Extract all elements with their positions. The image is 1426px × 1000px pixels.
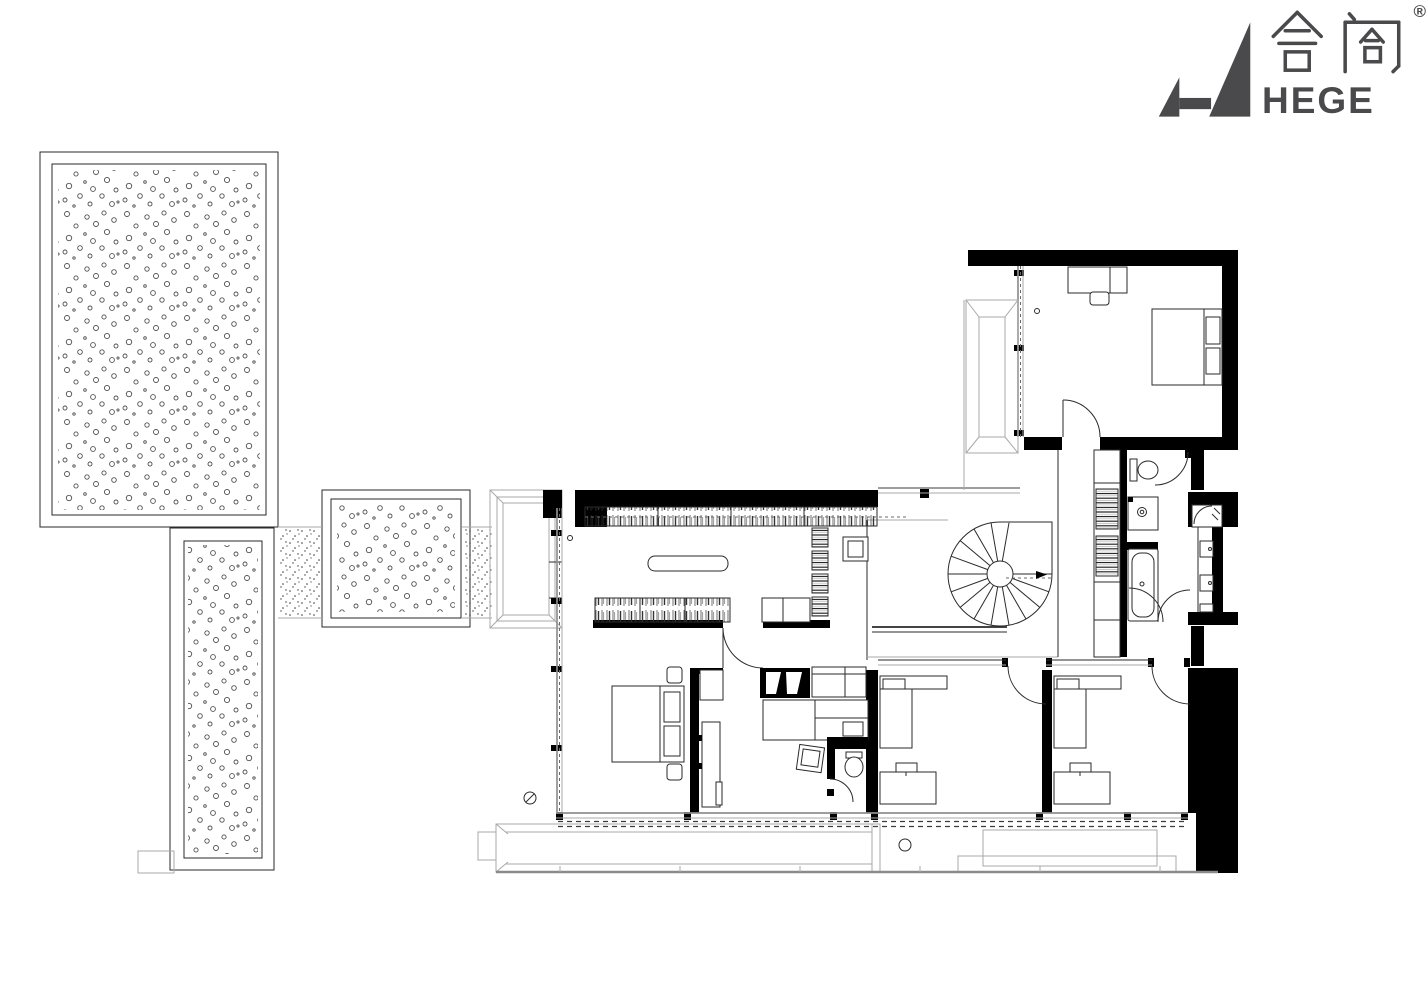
table [648, 556, 728, 571]
stipple-path-right [464, 529, 492, 616]
monitor [896, 763, 917, 772]
brand-chinese-characters: 合阁 ® [1262, 6, 1410, 78]
hege-logo-mark [1142, 19, 1254, 119]
planter-skylight [966, 300, 1018, 453]
single-bed [880, 689, 912, 748]
nightstand [667, 764, 682, 780]
wc-room [1130, 450, 1204, 490]
desk [1054, 772, 1110, 804]
single-bed [1054, 689, 1086, 748]
kid-bedroom-1 [880, 666, 1046, 804]
spiral-staircase [948, 522, 1052, 626]
gravel-garden-large [40, 152, 278, 527]
dressing-room [698, 667, 868, 807]
upper-bedroom [1035, 267, 1223, 437]
terrace-right [983, 830, 1157, 866]
stipple-path-left [280, 529, 322, 616]
brand-chinese-strokes [1262, 6, 1410, 78]
monitor [1070, 763, 1091, 772]
brand-logo: 合阁 ® HEGE [1142, 6, 1410, 119]
cabinet [812, 528, 828, 547]
cabinet [812, 574, 828, 593]
toilet-tank [1130, 459, 1137, 481]
direction-arrow [1036, 571, 1047, 579]
living-library [568, 507, 908, 668]
shelf [700, 670, 723, 700]
sideboard [762, 598, 810, 622]
door-swing [1155, 452, 1188, 485]
kid-bedroom-2 [1054, 666, 1190, 804]
double-bed [1152, 309, 1222, 385]
master-bedroom [524, 667, 684, 804]
terrace-left [496, 824, 880, 872]
gravel-garden-square [322, 490, 470, 627]
entry-porch-canopy [490, 490, 562, 628]
pillow [664, 726, 680, 756]
drain [899, 839, 911, 851]
corner-shower [1192, 505, 1222, 527]
double-bed [612, 686, 684, 762]
desk-chair [1090, 292, 1109, 305]
door-swing [1152, 666, 1190, 704]
bathtub [1128, 549, 1158, 621]
desk [1068, 267, 1127, 293]
floor-plan-sheet: 合阁 ® HEGE [0, 0, 1426, 1000]
bathroom [1128, 497, 1222, 666]
chair [796, 744, 824, 772]
counter [812, 667, 866, 697]
door-swing [1008, 666, 1046, 704]
desk [880, 772, 936, 804]
wc-small [827, 737, 868, 802]
pillow [1206, 317, 1220, 344]
bookshelf-low [595, 598, 730, 622]
pillow [664, 692, 680, 722]
cabinet [812, 551, 828, 570]
door-swing [723, 628, 763, 668]
registered-trademark: ® [1413, 2, 1426, 22]
toilet [845, 757, 863, 777]
washbasins [1198, 527, 1213, 612]
island [763, 700, 868, 740]
gravel-garden-strip [138, 528, 274, 873]
terrace-step [478, 832, 496, 860]
terrace [478, 824, 1218, 872]
corridor-wardrobe [1094, 450, 1120, 657]
pillow [1206, 348, 1220, 374]
nightstand [667, 667, 682, 683]
cabinet [812, 597, 828, 616]
toilet [1138, 461, 1158, 479]
door-swing [1063, 400, 1100, 437]
floor-plan-drawing [0, 0, 1426, 1000]
brand-name: HEGE [1262, 82, 1375, 119]
